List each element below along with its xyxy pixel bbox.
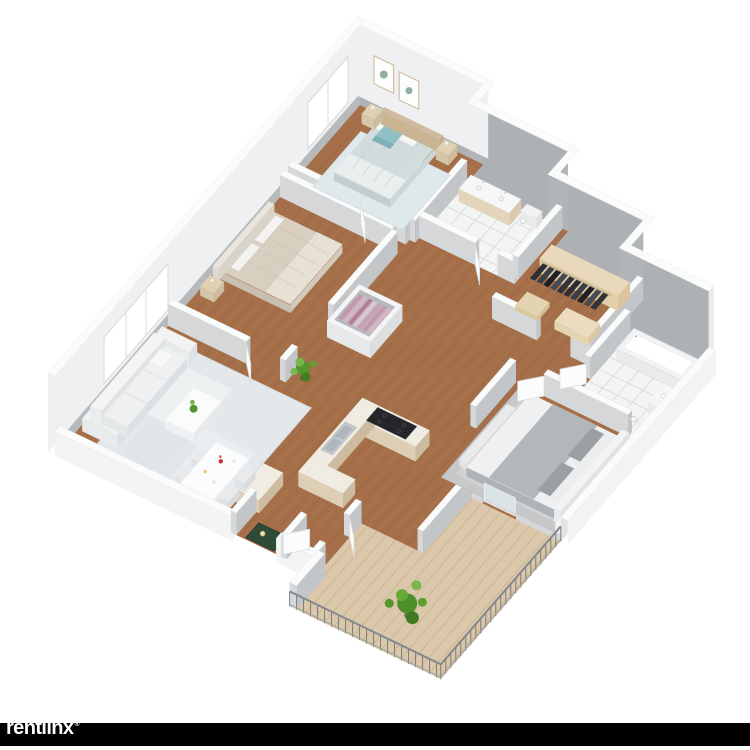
watermark-label: rentlinx	[6, 717, 73, 739]
floor-plan-render	[0, 0, 750, 750]
floor-plan-image: rentlinx®	[0, 0, 750, 750]
registered-mark: ®	[74, 721, 79, 728]
watermark-bar: rentlinx®	[0, 723, 750, 746]
rentlinx-logo: rentlinx®	[6, 718, 79, 738]
